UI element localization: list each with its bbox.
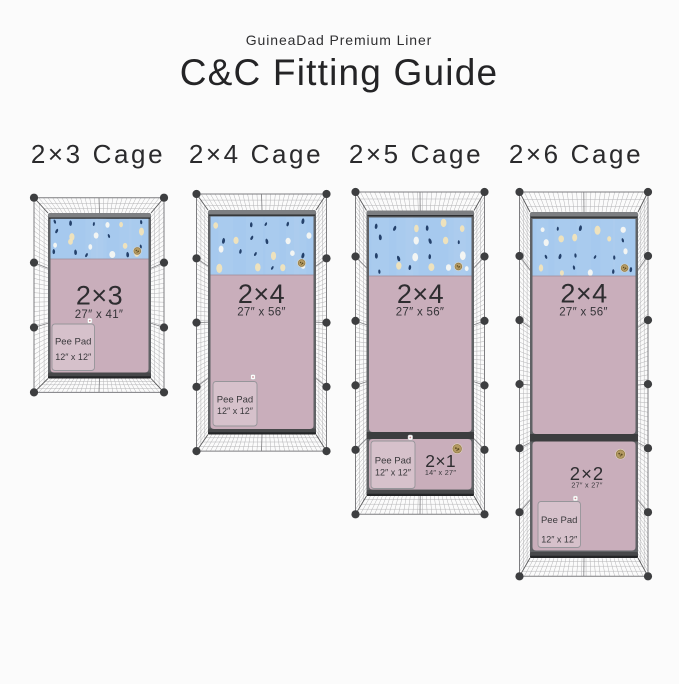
- svg-text:12″ x 12″: 12″ x 12″: [55, 352, 92, 362]
- svg-text:2×4: 2×4: [560, 279, 607, 309]
- svg-text:2×3 Cage: 2×3 Cage: [31, 139, 165, 169]
- svg-text:27″ x 56″: 27″ x 56″: [237, 306, 286, 318]
- svg-text:12″ x 12″: 12″ x 12″: [375, 468, 412, 478]
- svg-text:2×6 Cage: 2×6 Cage: [509, 139, 643, 169]
- svg-text:27″ x 41″: 27″ x 41″: [75, 309, 124, 321]
- svg-text:Pee Pad: Pee Pad: [217, 395, 253, 406]
- svg-text:12″ x 12″: 12″ x 12″: [541, 535, 578, 545]
- svg-text:2×5 Cage: 2×5 Cage: [349, 139, 483, 169]
- svg-text:Pee Pad: Pee Pad: [541, 515, 577, 526]
- svg-text:Pee Pad: Pee Pad: [55, 337, 91, 348]
- svg-text:2×4 Cage: 2×4 Cage: [189, 139, 323, 169]
- svg-text:14″ x 27″: 14″ x 27″: [425, 468, 457, 477]
- svg-text:27″ x 56″: 27″ x 56″: [559, 307, 608, 319]
- svg-text:Pee Pad: Pee Pad: [375, 456, 411, 467]
- svg-text:2×4: 2×4: [397, 279, 444, 309]
- svg-text:27″ x 56″: 27″ x 56″: [396, 307, 445, 319]
- svg-text:27″ x 27″: 27″ x 27″: [571, 481, 603, 490]
- svg-text:2×3: 2×3: [76, 281, 123, 311]
- svg-text:12″ x 12″: 12″ x 12″: [217, 406, 254, 416]
- svg-text:GuineaDad Premium Liner: GuineaDad Premium Liner: [246, 32, 432, 48]
- svg-text:C&C Fitting Guide: C&C Fitting Guide: [180, 52, 499, 93]
- svg-text:2×4: 2×4: [238, 279, 285, 309]
